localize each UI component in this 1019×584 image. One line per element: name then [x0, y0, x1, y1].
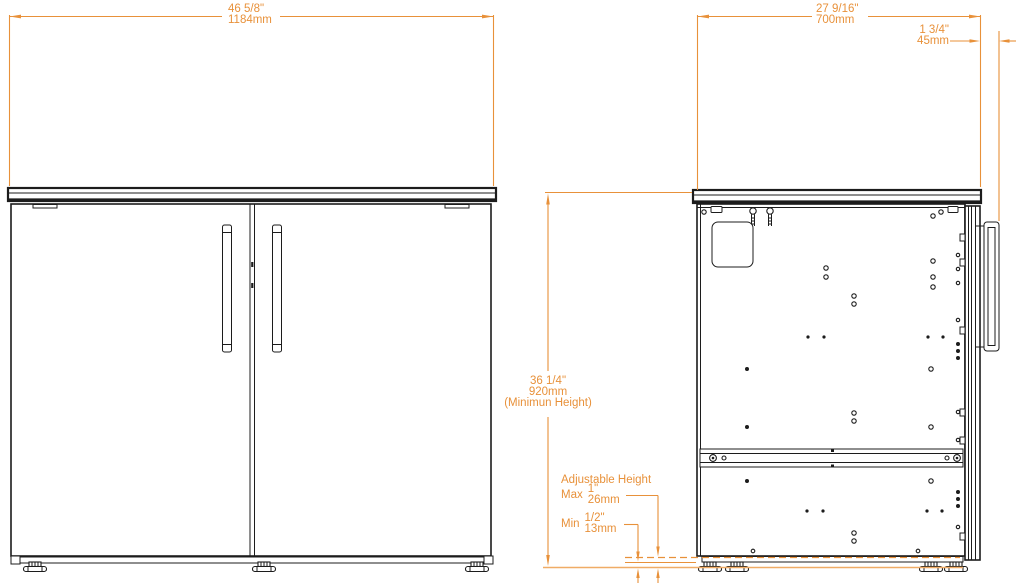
- max-word: Max: [561, 489, 583, 501]
- slide-rail: [700, 449, 963, 467]
- front-base: [11, 556, 493, 572]
- max-height-label: Max 1" 26mm: [561, 484, 620, 505]
- height-note: (Minimun Height): [495, 398, 601, 409]
- front-countertop: [8, 188, 496, 201]
- min-height-label: Min 1/2" 13mm: [561, 513, 616, 534]
- drawing-canvas: 46 5/8" 1184mm 27 9/16" 700mm 1 3/4" 45m…: [0, 0, 1019, 584]
- front-doors: [11, 204, 491, 556]
- side-base: [699, 557, 968, 572]
- technical-drawing: [0, 0, 1019, 584]
- left-door-handle: [223, 225, 232, 352]
- depth-mm: 700mm: [816, 15, 858, 26]
- min-word: Min: [561, 518, 580, 530]
- right-door-handle: [273, 225, 282, 352]
- max-mm: 26mm: [588, 495, 620, 506]
- min-mm: 13mm: [585, 524, 617, 535]
- height-dimension-label: 36 1/4" 920mm (Minimun Height): [495, 376, 601, 409]
- side-view: [693, 190, 999, 572]
- front-offset-dimension-label: 1 3/4" 45mm: [893, 25, 949, 47]
- front-view: [8, 188, 496, 572]
- width-dimension-label: 46 5/8" 1184mm: [228, 4, 272, 26]
- width-mm: 1184mm: [228, 15, 272, 26]
- vent-panel: [712, 222, 753, 267]
- max-inches: 1": [588, 484, 620, 495]
- depth-dimension-label: 27 9/16" 700mm: [816, 4, 858, 26]
- min-inches: 1/2": [585, 513, 617, 524]
- front-offset-mm: 45mm: [893, 36, 949, 47]
- side-countertop: [693, 190, 981, 203]
